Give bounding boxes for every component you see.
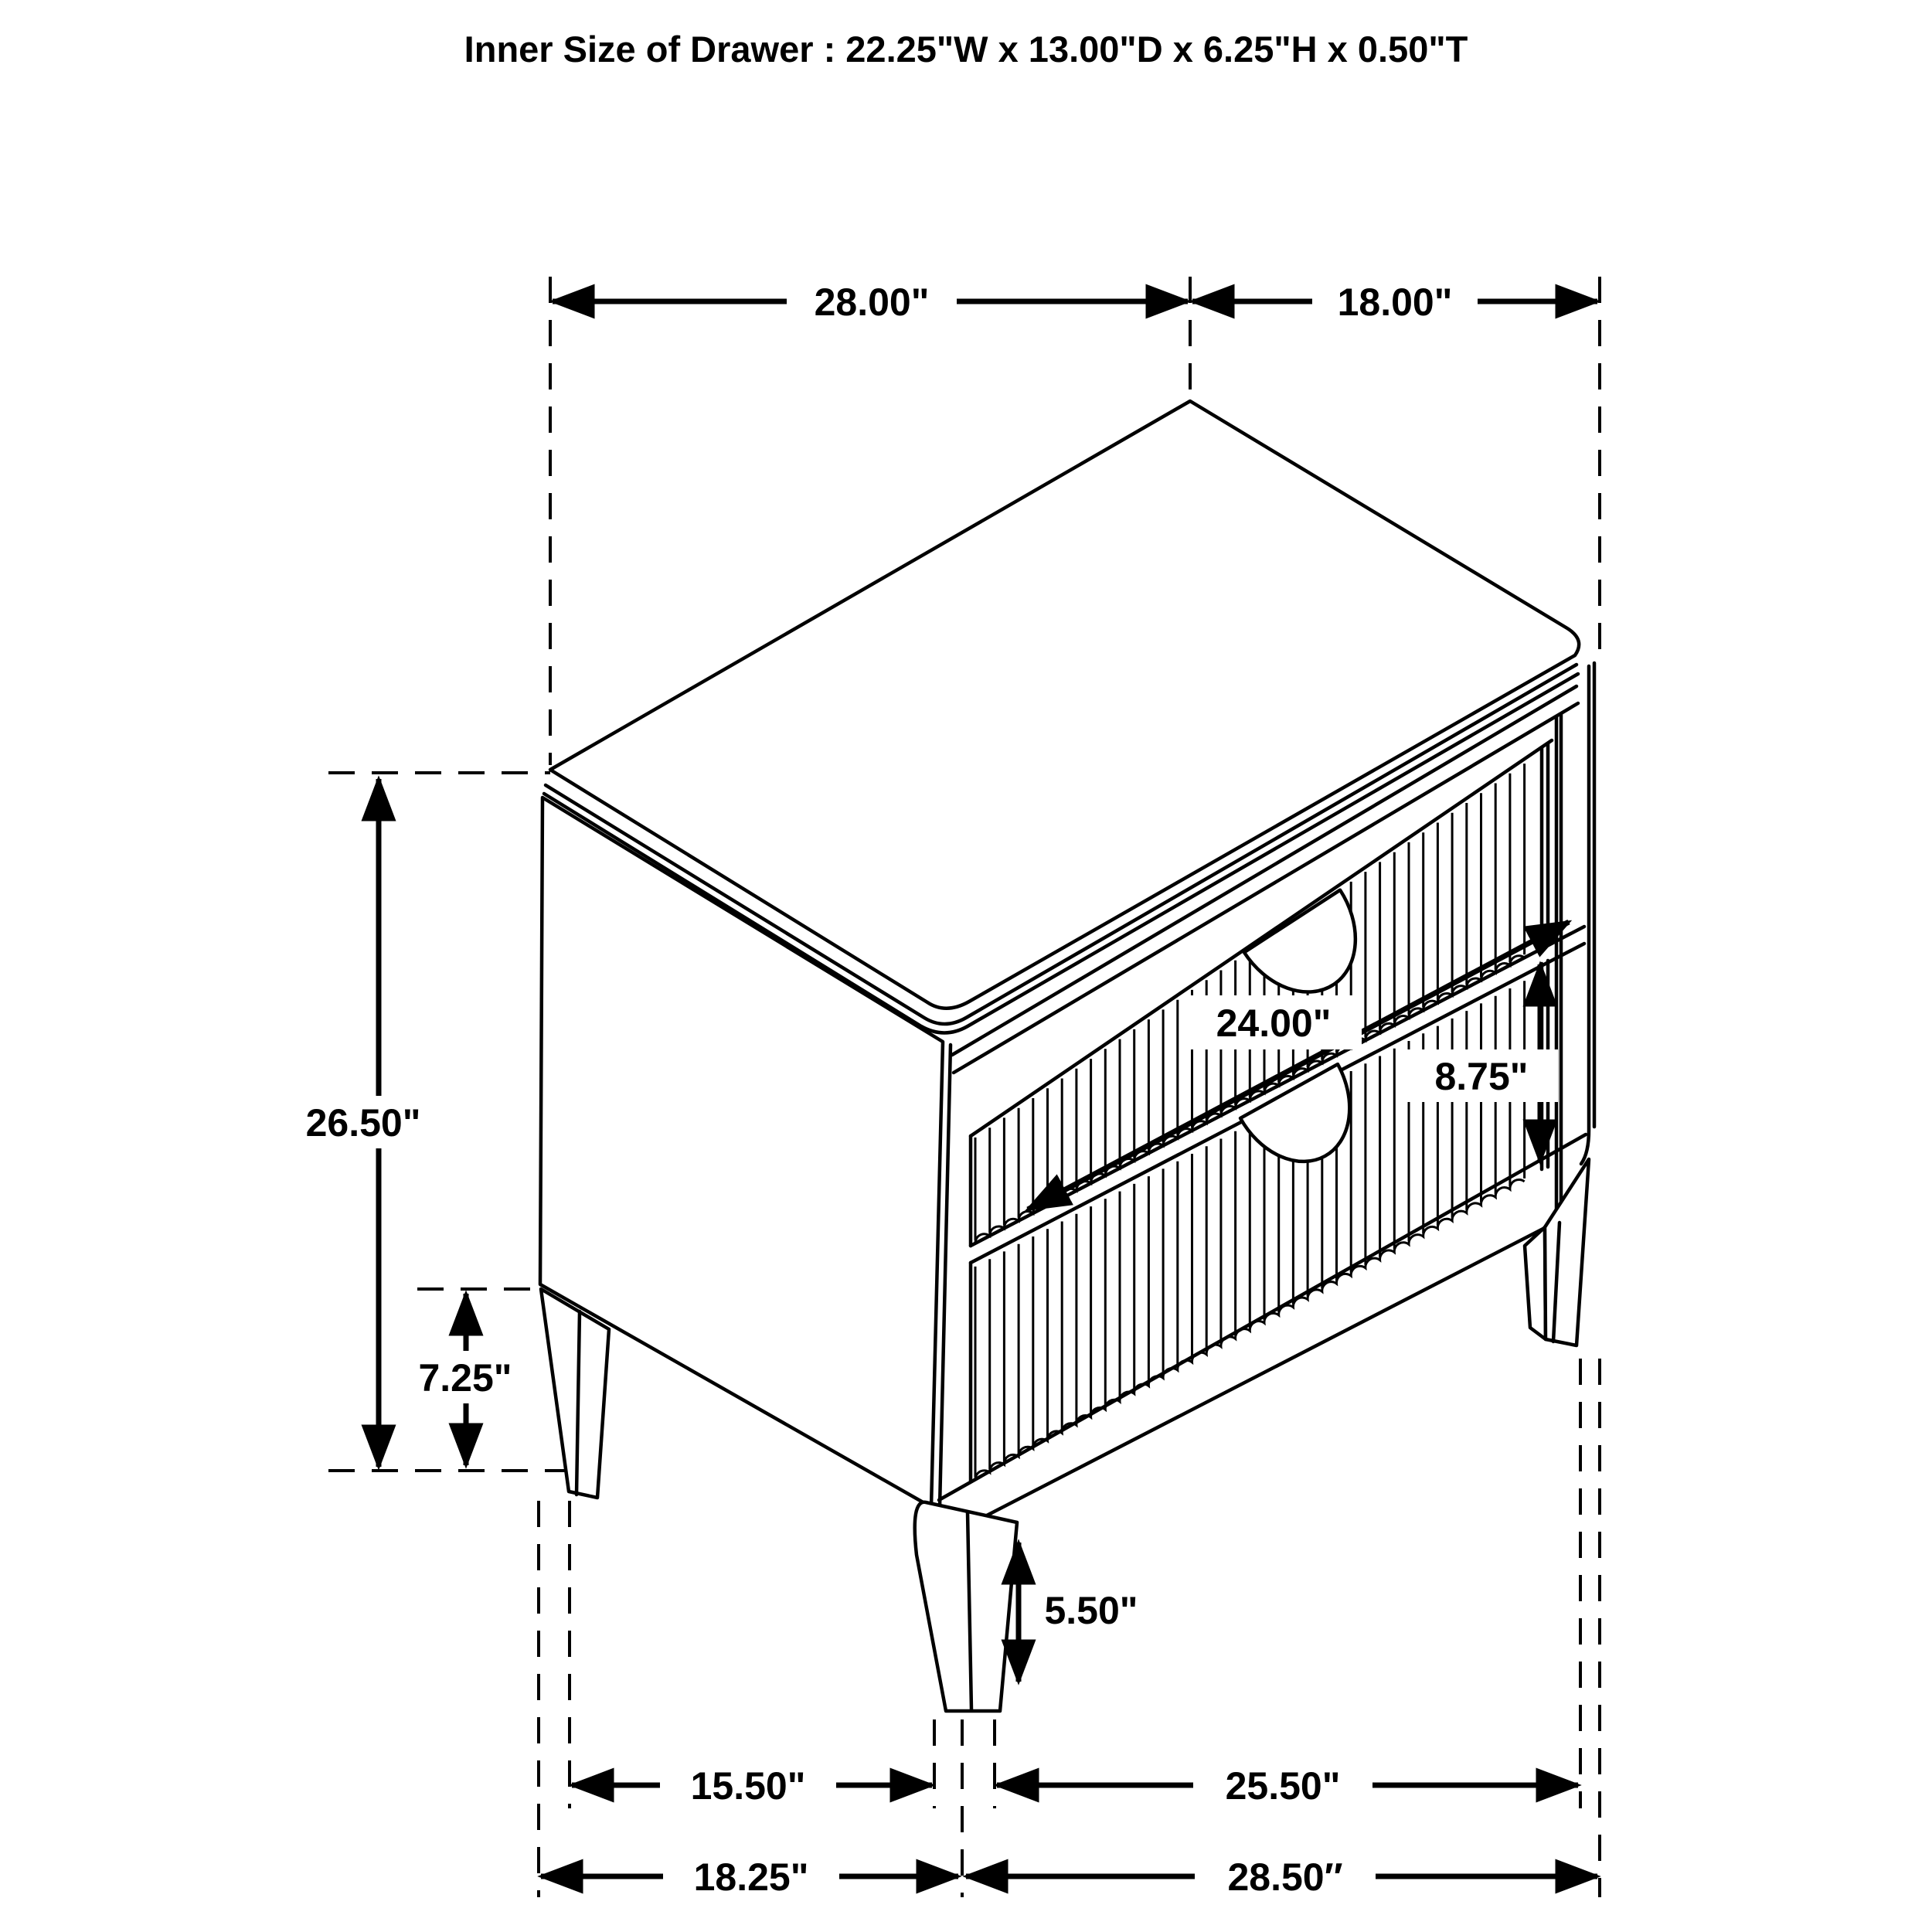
dim-label-front-leg-height: 5.50" [1044,1589,1138,1632]
dim-footprint-depth: 18.25" [541,1851,958,1902]
dim-label-drawer-face-width: 24.00" [1216,1002,1332,1045]
dim-top-depth: 18.00" [1192,275,1597,328]
dim-front-leg-height: 5.50" [1019,1543,1155,1682]
dim-label-top-width: 28.00" [815,281,930,324]
front-right-leg-side [1525,1227,1546,1339]
bottom-rail-bottom [931,1219,1561,1544]
dim-label-leg-span-front: 25.50" [1226,1764,1341,1808]
dim-footprint-width: 28.50″ [966,1851,1597,1902]
dim-label-footprint-width: 28.50″ [1227,1855,1342,1899]
dim-leg-span-front: 25.50" [997,1760,1578,1811]
dim-label-drawer-face-height: 8.75" [1434,1055,1528,1098]
dim-label-base-clearance: 7.25" [418,1356,512,1400]
dim-label-top-depth: 18.00" [1338,281,1453,324]
furniture-dimension-page: Inner Size of Drawer : 22.25"W x 13.00"D… [0,0,1932,1932]
front-left-leg [915,1502,1017,1711]
right-outer-edge-1 [1581,666,1589,1164]
dim-label-leg-span-side: 15.50" [691,1764,806,1808]
dim-base-clearance: 7.25" [391,1294,539,1465]
diagram-title: Inner Size of Drawer : 22.25"W x 13.00"D… [464,29,1468,70]
dim-label-footprint-depth: 18.25" [694,1855,809,1899]
dim-top-width: 28.00" [553,275,1188,328]
dim-leg-span-side: 15.50" [572,1760,932,1811]
dim-label-overall-height: 26.50" [306,1101,421,1145]
nightstand-dimension-diagram: Inner Size of Drawer : 22.25"W x 13.00"D… [0,0,1932,1932]
back-left-leg [541,1289,609,1498]
bottom-rail-top [939,1134,1586,1500]
front-right-leg [1545,1159,1589,1345]
